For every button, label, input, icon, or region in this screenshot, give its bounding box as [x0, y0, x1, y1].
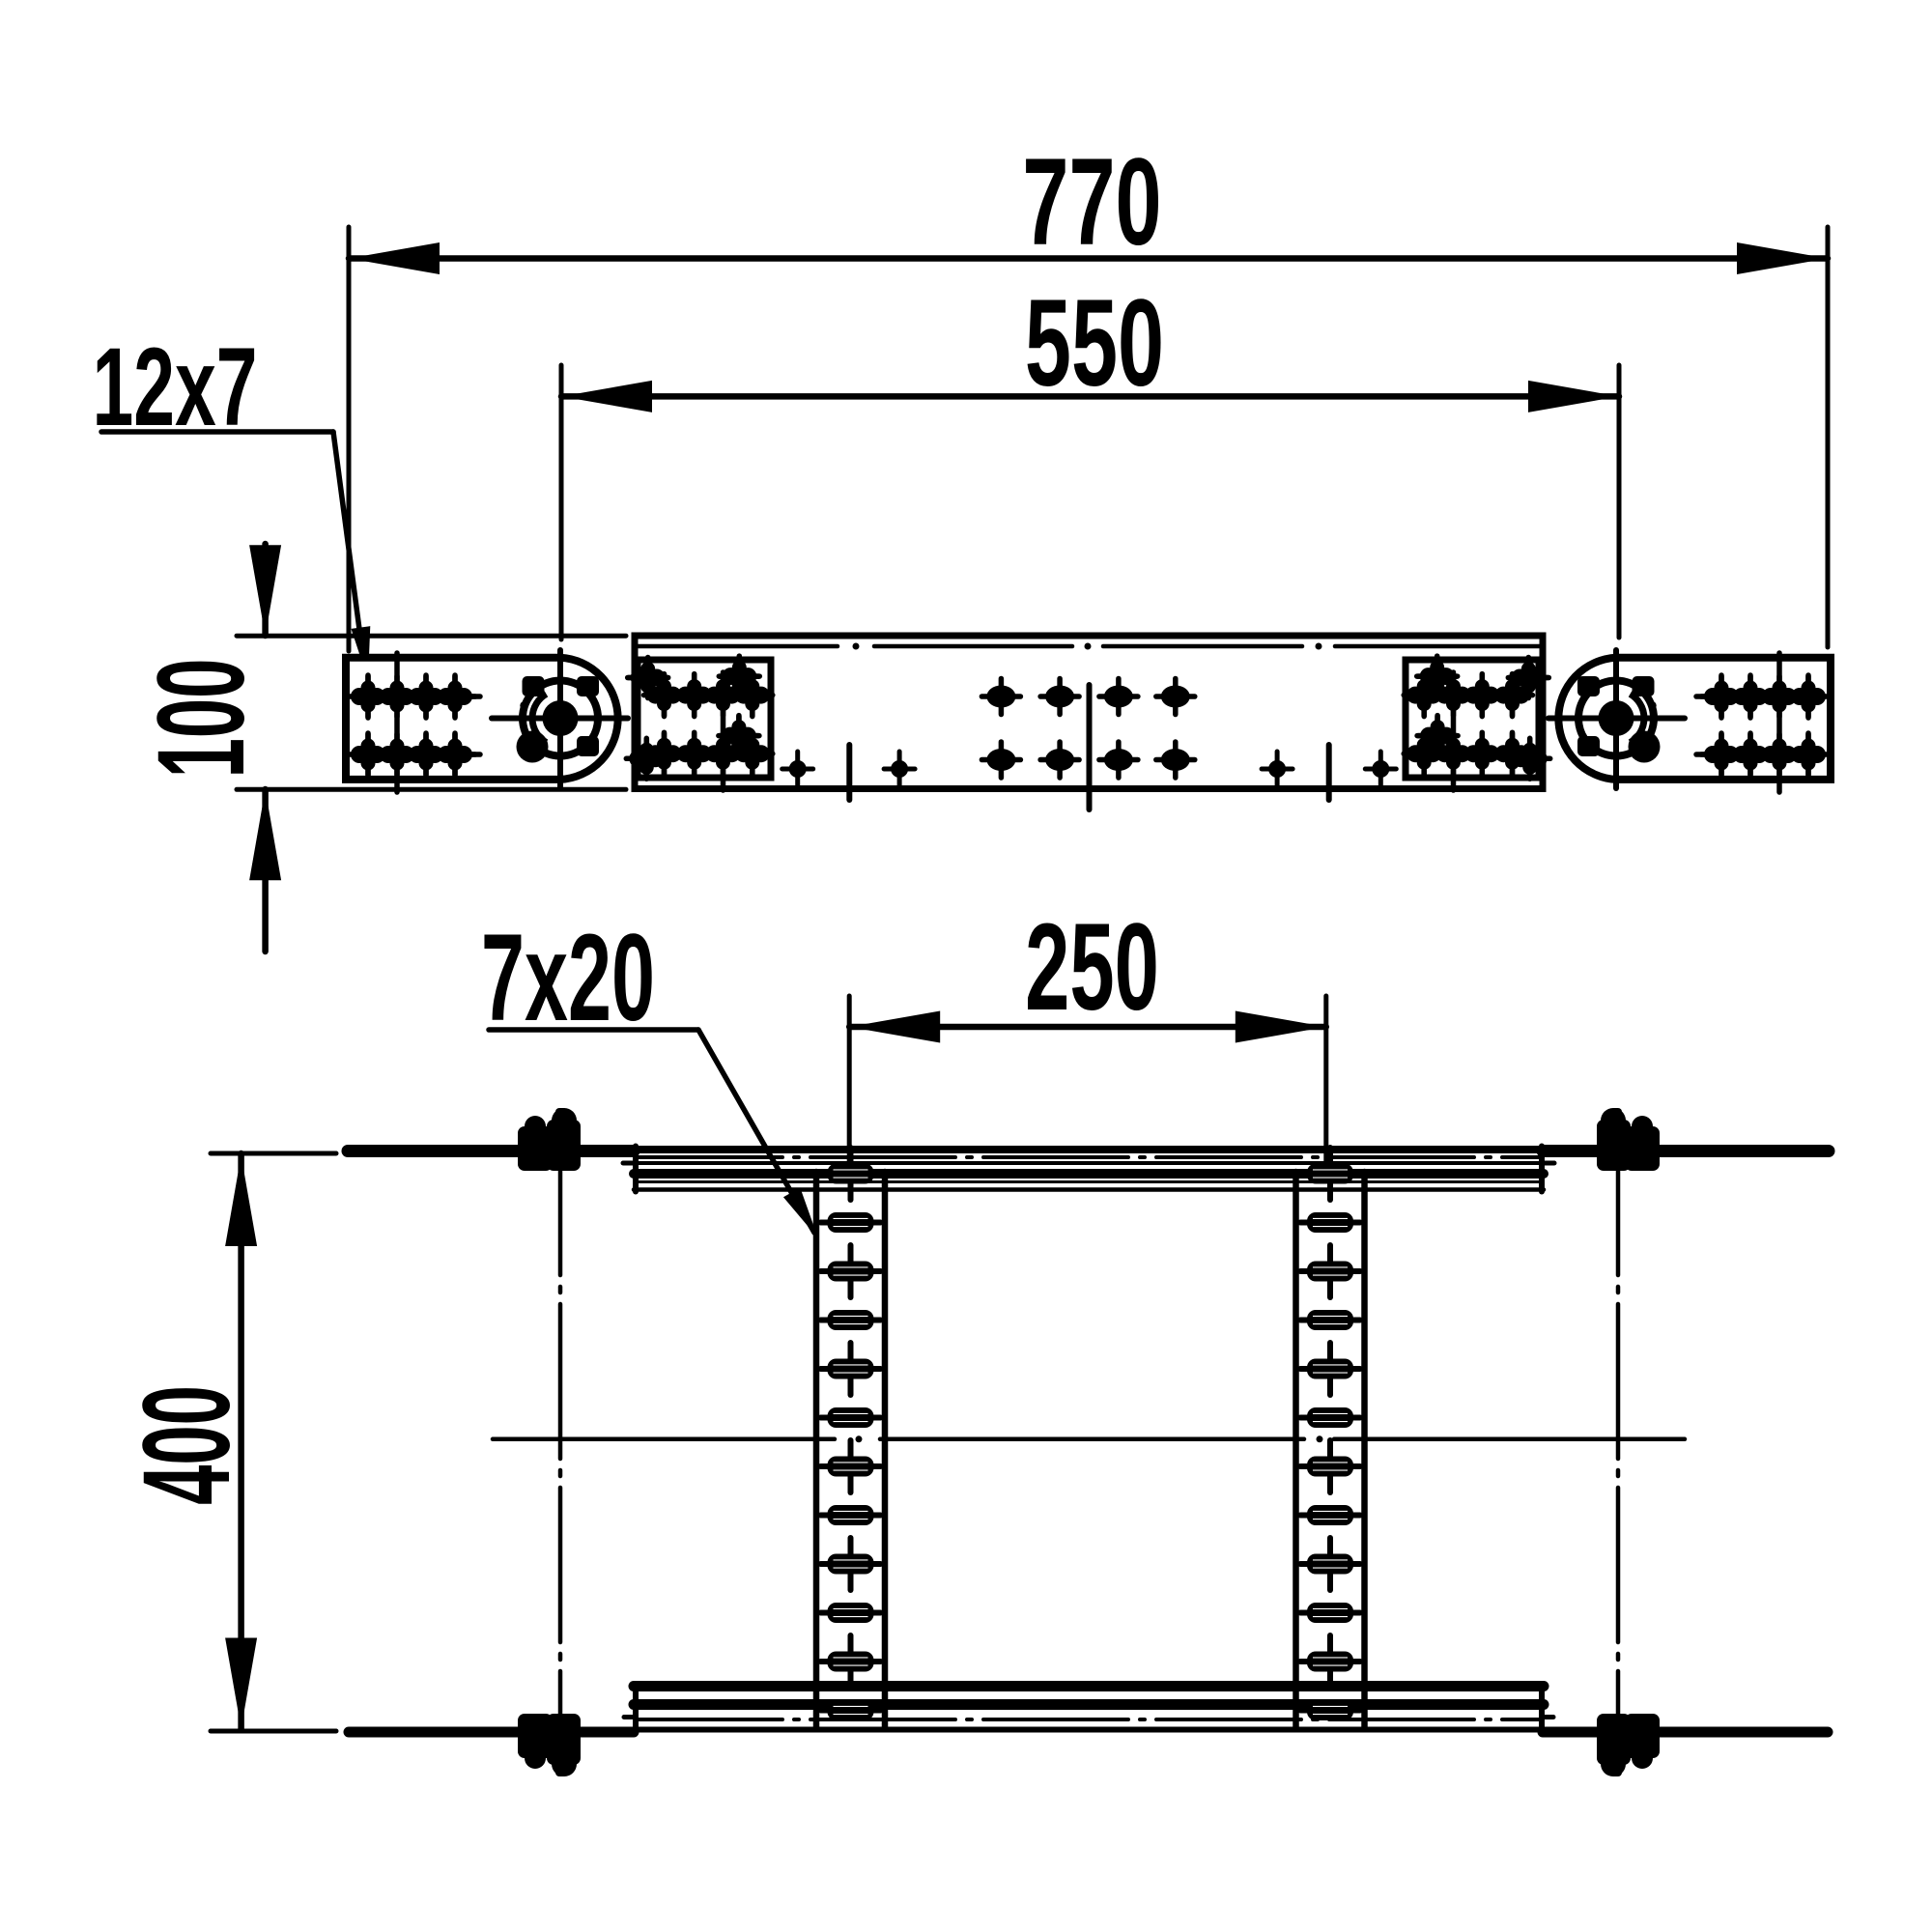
svg-text:7x20: 7x20: [481, 908, 655, 1046]
svg-text:550: 550: [1025, 274, 1164, 412]
svg-text:770: 770: [1022, 133, 1161, 271]
svg-text:100: 100: [132, 659, 270, 779]
svg-text:400: 400: [118, 1385, 256, 1505]
svg-text:250: 250: [1025, 897, 1159, 1036]
